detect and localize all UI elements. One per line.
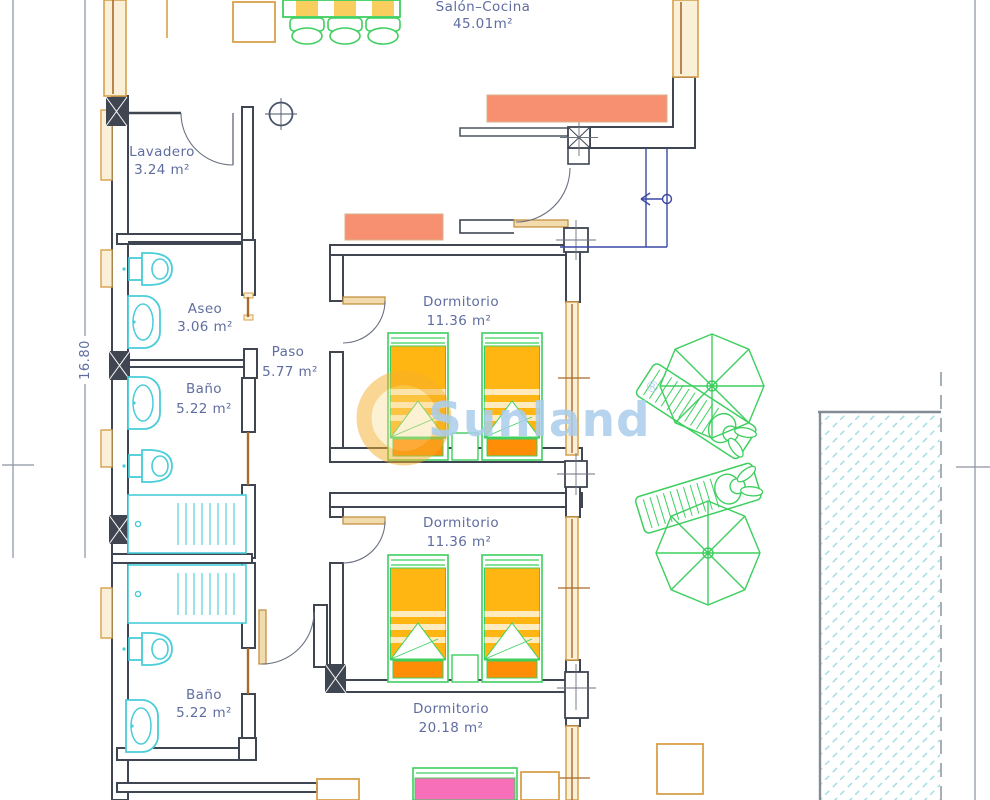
dimension-label-height: 16.80 [78,340,93,380]
wall-banio-divider [112,554,252,563]
sink-banio1 [128,377,160,429]
chair-cushion-2 [334,0,356,16]
pool [818,372,941,800]
wall-dorm1-left-lower [330,352,343,448]
label-salon-area: 45.01m² [453,16,513,32]
wall-banio1-right-upper [242,378,255,432]
wall-bottom [117,783,317,792]
parasol-1 [660,334,764,438]
windows-right-wall [558,302,590,800]
label-dorm1-area: 11.36 m² [427,313,492,329]
wall-banio2-bottom-notch [239,738,256,760]
wall-dorm3-left [314,605,327,667]
label-banio1-name: Baño [186,381,222,397]
sun-lounger-2 [634,461,765,534]
column-black-banio [109,515,130,544]
column-black-aseo [109,351,130,380]
dining-chair-2 [328,18,362,44]
wall-lavadero-right [242,107,253,244]
label-lavadero-area: 3.24 m² [134,162,190,178]
dining-chair-3 [366,18,400,44]
wall-aseo-banio-divider [128,360,246,367]
nightstand-dorm2 [452,655,478,682]
wall-dorm1-left-upper [330,255,343,301]
outdoor-table [657,744,703,794]
wall-right-mid1 [566,486,580,517]
wall-dorm2-top [330,493,582,507]
wall-left-exterior [112,96,128,800]
chair-cushion-1 [296,0,318,16]
label-lavadero-name: Lavadero [129,144,195,160]
wall-aseo-right [242,240,255,295]
door-dorm1 [343,297,385,343]
outdoor-furniture [634,334,765,794]
bed-double-dorm3 [413,768,517,800]
floor-plan-page: 16.80 [0,0,990,800]
toilet-aseo [122,253,172,285]
bed-dorm2-right [482,555,542,682]
column-black-lavadero [106,97,127,126]
label-dorm3-name: Dormitorio [413,701,489,717]
window-entry-top [673,0,698,77]
label-banio1-area: 5.22 m² [176,401,232,417]
wall-dorm1-top [330,245,570,255]
wall-dorm2-left-stub [330,507,343,517]
wall-entry-stub [568,148,589,164]
sofa-salmon-top [487,95,667,122]
door-salon-entry [514,168,570,234]
door-dorm3 [259,610,314,664]
watermark-registered: ® [645,378,660,396]
sill-banio2 [101,588,112,638]
sofa-salmon-mid [345,214,443,240]
watermark-brand: Sunland [428,393,651,448]
label-dorm2-name: Dormitorio [423,515,499,531]
label-paso-name: Paso [272,344,305,360]
salon-furniture [233,0,667,240]
wall-entry-thin [460,128,568,136]
shower-banio1 [128,495,246,553]
wall-right-upper [566,250,580,302]
dining-chair-1 [290,18,324,44]
label-banio2-area: 5.22 m² [176,705,232,721]
wardrobe-dorm3-left [317,779,359,800]
column-hatched-entry [560,119,598,156]
toilet-banio1 [122,450,172,482]
sideboard [233,2,275,42]
sink-banio2 [126,700,158,752]
label-aseo-name: Aseo [188,301,222,317]
column-black-dorm3 [325,664,346,693]
parasol-2 [656,501,760,605]
wall-dorm2-left-lower [330,563,343,680]
sill-banio1 [101,430,112,467]
label-aseo-area: 3.06 m² [177,319,233,335]
shower-banio2 [128,565,246,623]
pool-water [820,412,940,800]
label-dorm3-area: 20.18 m² [419,720,484,736]
wall-paso-return [244,349,257,378]
door-aseo [244,293,253,320]
label-salon-name: Salón–Cocina [436,0,531,15]
window-salon-left [104,0,126,96]
label-dorm2-area: 11.36 m² [427,534,492,550]
toilet-banio2 [122,633,172,665]
wall-right-mid3 [566,718,580,726]
chair-cushion-3 [372,0,394,16]
bed-dorm2-left [388,555,448,682]
sill-aseo [101,250,112,287]
floor-plan-drawing: 16.80 [0,0,990,800]
label-dorm1-name: Dormitorio [423,294,499,310]
nightstand-dorm3 [521,772,559,800]
sink-aseo [128,296,160,348]
door-dorm2 [343,517,385,563]
wall-right-mid2 [566,660,580,672]
label-banio2-name: Baño [186,687,222,703]
column-circle-salon [265,98,297,130]
label-paso-area: 5.77 m² [262,364,318,380]
